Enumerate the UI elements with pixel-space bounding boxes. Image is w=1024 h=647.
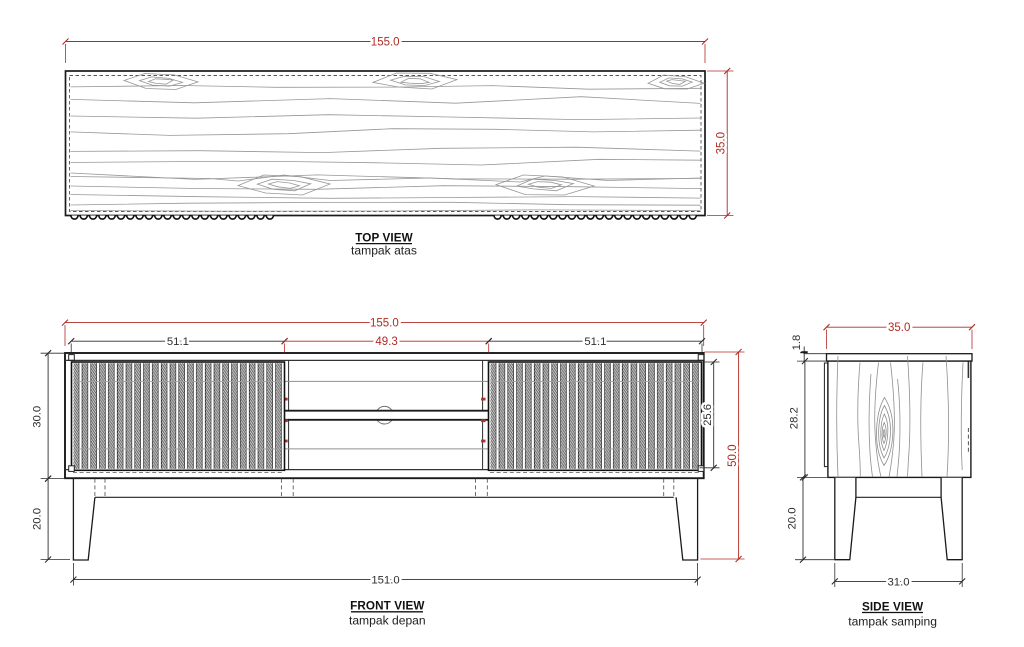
svg-text:tampak depan: tampak depan [349, 614, 426, 628]
svg-text:49.3: 49.3 [375, 336, 397, 348]
svg-text:35.0: 35.0 [888, 322, 910, 334]
svg-text:50.0: 50.0 [727, 445, 739, 467]
svg-text:35.0: 35.0 [716, 132, 728, 154]
svg-text:20.0: 20.0 [32, 508, 44, 530]
svg-text:51.1: 51.1 [167, 336, 189, 348]
svg-text:155.0: 155.0 [370, 318, 399, 330]
svg-text:FRONT VIEW: FRONT VIEW [350, 600, 425, 613]
svg-text:1.8: 1.8 [791, 335, 803, 351]
svg-text:20.0: 20.0 [787, 508, 799, 530]
svg-text:tampak atas: tampak atas [351, 243, 417, 257]
svg-text:tampak samping: tampak samping [848, 614, 937, 628]
svg-text:155.0: 155.0 [371, 36, 400, 48]
svg-text:25.6: 25.6 [702, 404, 714, 426]
svg-text:51.1: 51.1 [584, 336, 606, 348]
svg-text:28.2: 28.2 [788, 407, 800, 429]
svg-text:SIDE VIEW: SIDE VIEW [862, 600, 924, 613]
svg-text:30.0: 30.0 [32, 406, 44, 428]
svg-text:151.0: 151.0 [371, 575, 399, 587]
svg-text:31.0: 31.0 [888, 576, 910, 588]
